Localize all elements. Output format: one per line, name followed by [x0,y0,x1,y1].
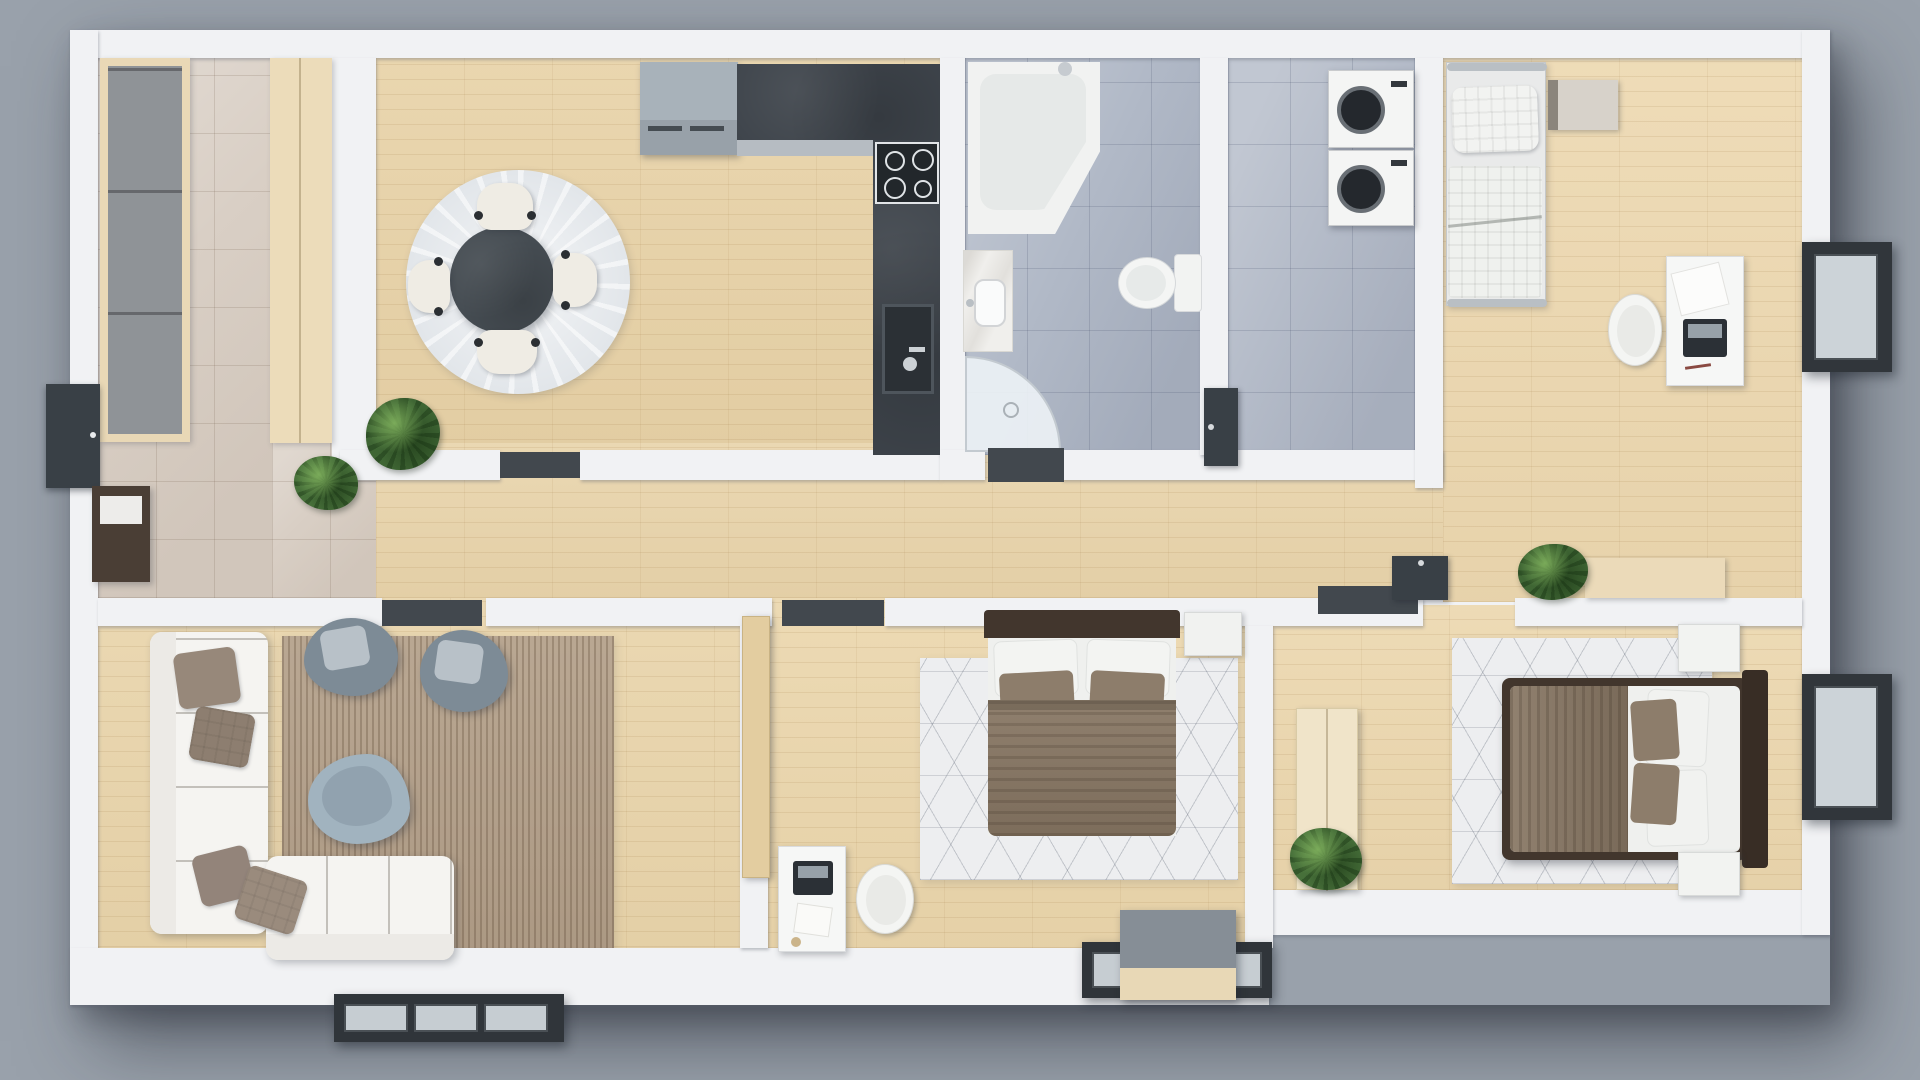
entry-door-handle [90,432,96,438]
burner [884,177,906,199]
window-glass [414,1004,478,1032]
window-bottom-left [334,994,564,1042]
window-glass [1814,686,1878,808]
doormat-living-room [382,600,482,626]
dryer-machine [1328,150,1414,226]
plant-bedroom-right [1290,828,1362,890]
door-handle [1418,560,1424,566]
toilet [1118,254,1202,312]
desk-top-right-bedroom [1666,256,1744,386]
nightstand-right-top [1678,624,1740,672]
fridge [640,62,738,155]
bed-rail-bottom [1447,299,1547,307]
dining-chair-east [553,253,597,307]
chair-armrest [531,338,540,347]
dining-chair-north [477,183,533,230]
sink-faucet [903,357,917,371]
wardrobe-seam [299,58,301,443]
sofa-backrest [150,632,176,934]
armchair-cushion [433,639,484,685]
chair-seat [866,875,906,925]
desk-papers [1670,262,1729,317]
bed-right-blanket [1510,686,1628,852]
toilet-seat [1126,265,1166,301]
bed-middle-headboard [984,610,1180,638]
bed-single-pillow [1451,85,1539,154]
nightstand-single-bed [1548,80,1618,130]
vanity-basin [974,279,1006,327]
wall-laundry-bedroom [1415,58,1443,488]
bathtub-basin [980,74,1086,210]
fridge-handle [690,126,724,131]
entry-console [92,486,150,582]
window-glass [1814,254,1878,360]
burner [885,151,905,171]
bench-front [1120,968,1236,1000]
dining-chair-south [477,330,537,374]
bathroom-vanity-sink [963,250,1013,352]
window-glass [484,1004,548,1032]
wall-hall-bottom-b [486,598,772,626]
dining-table [450,227,554,333]
toilet-tank [1174,254,1202,312]
desk-chair-bedroom-middle [856,864,914,934]
laptop-screen [1688,324,1722,338]
console-tray [100,496,142,524]
doormat-dining-room [500,452,580,478]
window-bedroom-right [1802,674,1892,820]
burner [914,180,932,198]
burner [912,149,934,171]
doormat-bathroom [988,448,1064,482]
bed-right-headboard [1742,670,1768,868]
desk-chair-top-right [1608,294,1662,366]
console-shelf-wood [1585,558,1725,598]
blanket-fold [988,700,1176,710]
chair-seat [1617,305,1655,357]
washer-panel [1391,81,1407,87]
chair-armrest [527,211,536,220]
wall-bathroom-corridor-a [940,450,985,480]
door-bedroom-right-open [1392,556,1448,600]
bed-rail-top [1447,63,1547,71]
wall-bathroom-corridor-b [1062,450,1443,480]
desk-laptop [1683,319,1727,357]
desk-laptop [793,861,833,895]
window-top-right-bedroom [1802,242,1892,372]
kitchen-counter-front [737,140,873,156]
vanity-faucet [966,299,974,307]
sofa-backrest [266,934,454,960]
kitchen-sink [882,304,934,394]
door-bedroom-middle-open [742,616,770,878]
desk-bedroom-middle [778,846,846,952]
building-inset-bottom-right [1269,931,1830,1005]
desk-pen [1685,363,1711,370]
chair-armrest [561,301,570,310]
bed-right-pillow-brown [1630,762,1680,825]
sofa-pillow [188,705,256,769]
bed-single-duvet [1448,166,1542,298]
nightstand-side [1548,80,1558,130]
stove-cooktop [875,142,939,204]
duvet-fold [1448,215,1542,228]
bathtub-faucet [1058,62,1072,76]
chair-armrest [474,211,483,220]
laptop-screen [798,866,828,878]
nightstand-bedroom-middle [1184,612,1242,656]
chair-armrest [561,250,570,259]
plant-entry [294,456,358,510]
entry-door [46,384,100,488]
dryer-panel [1391,160,1407,166]
bed-right-pillow-brown [1630,698,1680,761]
window-glass [344,1004,408,1032]
chair-armrest [434,307,443,316]
wall-outer-top [70,30,1830,58]
wall-closet-dining [332,58,376,473]
door-laundry-open [1204,388,1238,466]
chair-armrest [474,338,483,347]
armchair-cushion [319,624,371,671]
floor-plan [0,0,1920,1080]
shower-drain [1003,402,1019,418]
wall-outer-bottom-right [1269,890,1830,935]
wall-kitchen-bathroom [940,58,965,455]
closet-wardrobe-gray [100,58,190,442]
wall-hall-bottom-d [1515,598,1802,626]
dining-chair-west [408,260,450,313]
sink-spout [909,347,925,352]
armchair-gray [304,618,398,696]
washing-machine [1328,70,1414,148]
closet-sliding-doors [108,66,182,434]
dryer-door [1337,165,1385,213]
doormat-bedroom-middle [782,600,884,626]
desk-notebook [793,903,833,938]
chair-armrest [434,257,443,266]
storage-bench-box [1120,910,1236,1000]
door-handle [1208,424,1214,430]
kitchen-counter-top [737,64,940,140]
coffee-table-shade [322,766,392,826]
bench-top [1120,910,1236,968]
washer-door [1337,86,1385,134]
desk-cup [791,937,801,947]
wall-bedroom-middle-right [1245,626,1273,948]
bed-middle-blanket [988,700,1176,836]
closet-wardrobe-wood [270,58,332,443]
nightstand-right-bottom [1678,852,1740,896]
fridge-handle [648,126,682,131]
sofa-pillow [172,646,241,710]
